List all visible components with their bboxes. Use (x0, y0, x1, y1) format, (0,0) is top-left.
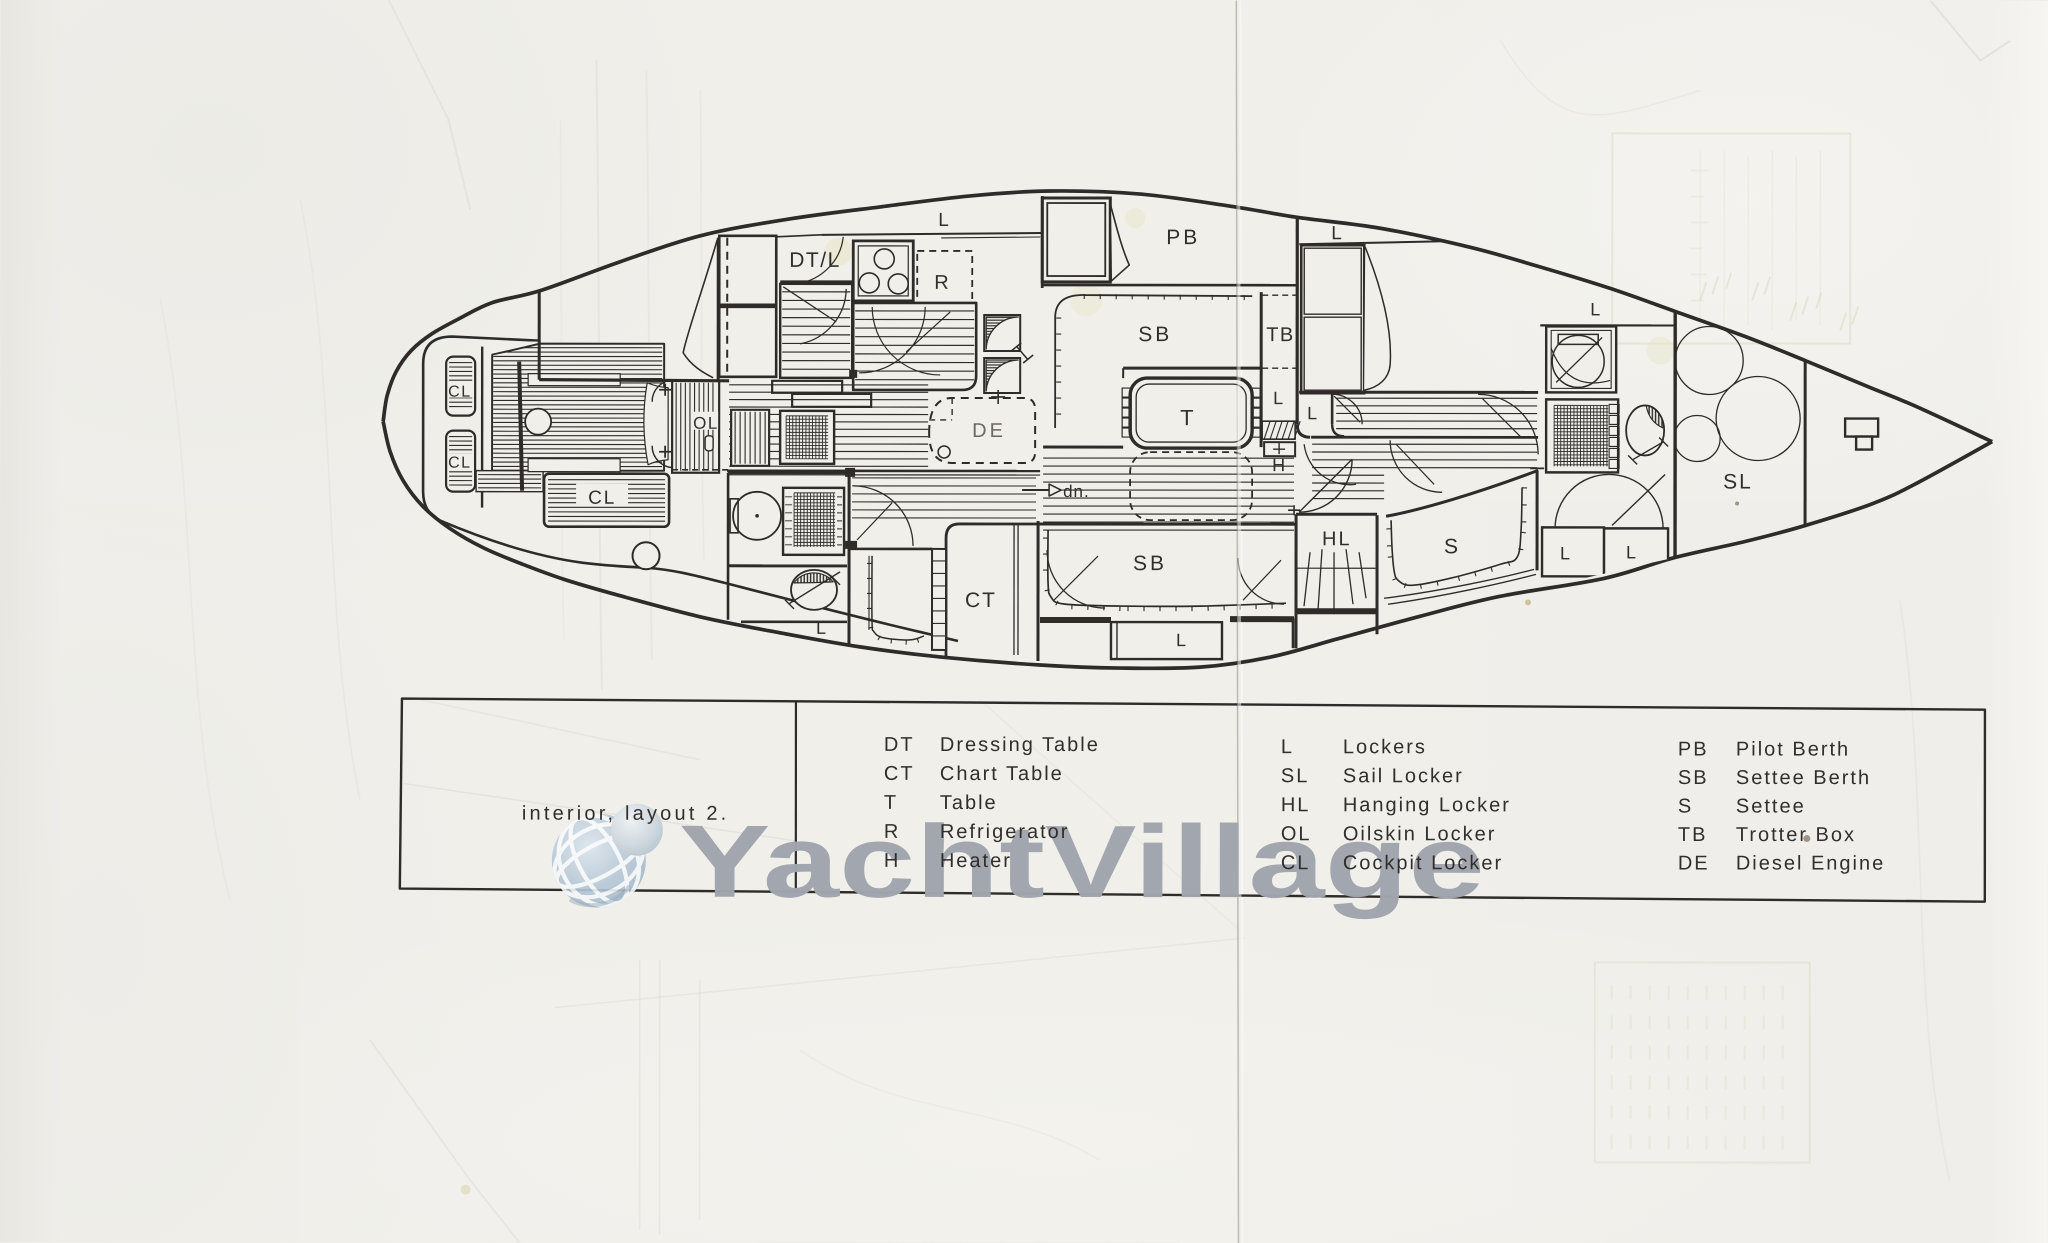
svg-text:Chart Table: Chart Table (940, 763, 1064, 785)
svg-text:S: S (1678, 795, 1693, 817)
svg-text:L: L (938, 210, 950, 231)
svg-text:L: L (816, 618, 827, 638)
svg-text:Cockpit Locker: Cockpit Locker (1343, 852, 1503, 874)
svg-text:DT: DT (884, 734, 915, 756)
svg-text:Dressing Table: Dressing Table (940, 734, 1100, 756)
svg-text:T: T (1180, 405, 1194, 430)
svg-text:Lockers: Lockers (1343, 736, 1427, 758)
svg-text:TB: TB (1266, 324, 1295, 346)
svg-text:TB: TB (1678, 824, 1708, 846)
svg-text:CL: CL (448, 455, 471, 472)
svg-text:DT/L: DT/L (789, 249, 841, 272)
svg-text:L: L (1273, 388, 1284, 408)
svg-text:Diesel Engine: Diesel Engine (1736, 852, 1885, 874)
svg-text:PB: PB (1678, 738, 1709, 760)
svg-text:R: R (884, 821, 900, 843)
svg-text:HL: HL (1281, 794, 1311, 816)
svg-text:CL: CL (1281, 852, 1311, 874)
svg-text:CL: CL (448, 384, 471, 401)
svg-text:S: S (1444, 535, 1459, 558)
svg-text:SB: SB (1678, 767, 1709, 789)
svg-text:SL: SL (1281, 765, 1309, 787)
svg-text:Pilot Berth: Pilot Berth (1736, 738, 1850, 760)
svg-text:Hanging Locker: Hanging Locker (1343, 794, 1511, 816)
svg-text:OL: OL (693, 414, 719, 433)
svg-text:Trotter Box: Trotter Box (1736, 824, 1856, 846)
svg-text:PB: PB (1166, 226, 1200, 249)
svg-text:CT: CT (884, 763, 915, 785)
svg-text:Heater: Heater (940, 850, 1012, 872)
svg-text:Table: Table (940, 792, 998, 814)
svg-text:T: T (884, 792, 898, 814)
svg-text:R: R (934, 272, 949, 294)
svg-text:HL: HL (1322, 528, 1352, 550)
svg-text:CL: CL (588, 488, 616, 509)
svg-text:Settee Berth: Settee Berth (1736, 767, 1871, 789)
svg-text:SL: SL (1723, 470, 1753, 493)
svg-text:L: L (1590, 299, 1601, 319)
svg-text:SB: SB (1138, 323, 1172, 346)
svg-text:H: H (884, 850, 900, 872)
svg-text:L: L (1281, 736, 1294, 758)
svg-text:L: L (1176, 630, 1187, 650)
svg-text:Refrigerator: Refrigerator (940, 821, 1070, 843)
svg-text:SB: SB (1133, 552, 1167, 575)
svg-text:Oilskin Locker: Oilskin Locker (1343, 823, 1497, 845)
svg-text:L: L (1560, 543, 1571, 563)
svg-text:Settee: Settee (1736, 795, 1806, 817)
svg-text:CT: CT (965, 589, 997, 612)
svg-text:interior, layout 2.: interior, layout 2. (522, 803, 730, 825)
svg-text:dn.: dn. (1063, 482, 1090, 501)
svg-text:OL: OL (1281, 823, 1312, 845)
svg-text:L: L (1626, 542, 1637, 562)
svg-text:Sail Locker: Sail Locker (1343, 765, 1464, 787)
svg-text:L: L (1331, 223, 1343, 244)
svg-text:DE: DE (972, 420, 1006, 442)
svg-text:L: L (1307, 403, 1318, 423)
svg-text:DE: DE (1678, 852, 1710, 874)
